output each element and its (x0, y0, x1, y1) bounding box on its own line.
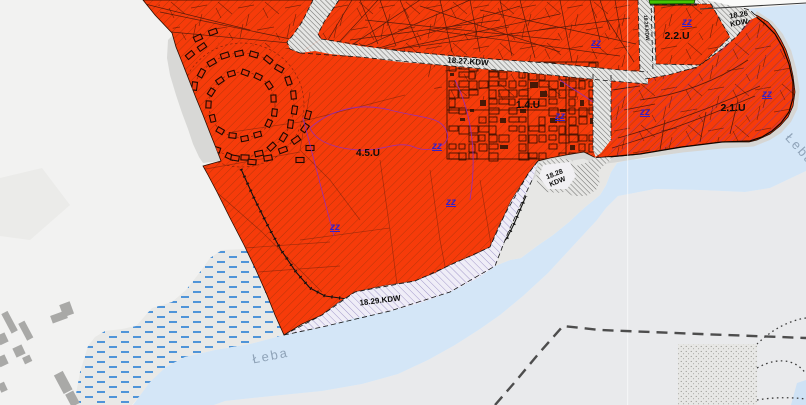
svg-text:1.4.U: 1.4.U (516, 100, 540, 111)
svg-text:zz: zz (761, 89, 772, 100)
svg-text:zz: zz (554, 111, 565, 122)
svg-text:2.2.U: 2.2.U (664, 30, 689, 42)
svg-text:zz: zz (329, 222, 340, 233)
svg-text:zz: zz (445, 197, 456, 208)
svg-text:zz: zz (639, 107, 650, 118)
svg-text:zz: zz (681, 17, 692, 28)
svg-text:zz: zz (590, 38, 601, 49)
svg-text:zz: zz (431, 141, 442, 152)
svg-text:4.5.U: 4.5.U (356, 148, 380, 159)
svg-text:2.1.U: 2.1.U (720, 102, 745, 114)
